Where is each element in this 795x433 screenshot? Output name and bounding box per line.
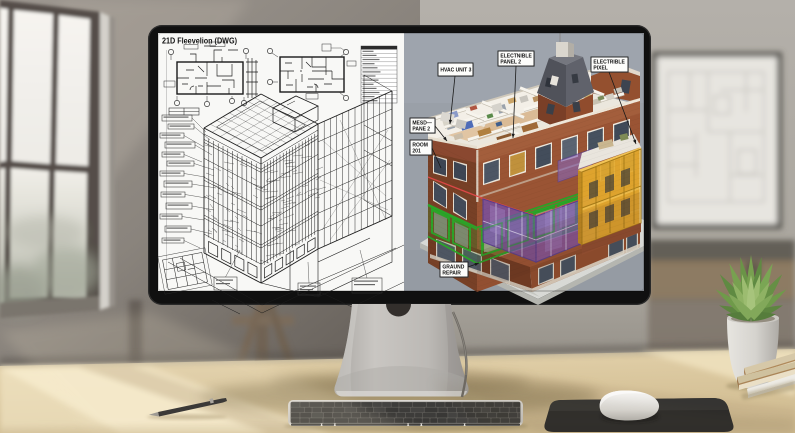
svg-text:REPAIR: REPAIR bbox=[442, 270, 461, 276]
svg-text:21D Fleevelion (DWG): 21D Fleevelion (DWG) bbox=[162, 37, 237, 46]
svg-text:201: 201 bbox=[412, 148, 421, 154]
svg-text:PIXEL: PIXEL bbox=[593, 65, 607, 71]
svg-text:PANEL 2: PANEL 2 bbox=[500, 59, 521, 65]
svg-text:PANE 2: PANE 2 bbox=[412, 126, 430, 132]
svg-text:HVAC UNIT 3: HVAC UNIT 3 bbox=[440, 68, 471, 74]
